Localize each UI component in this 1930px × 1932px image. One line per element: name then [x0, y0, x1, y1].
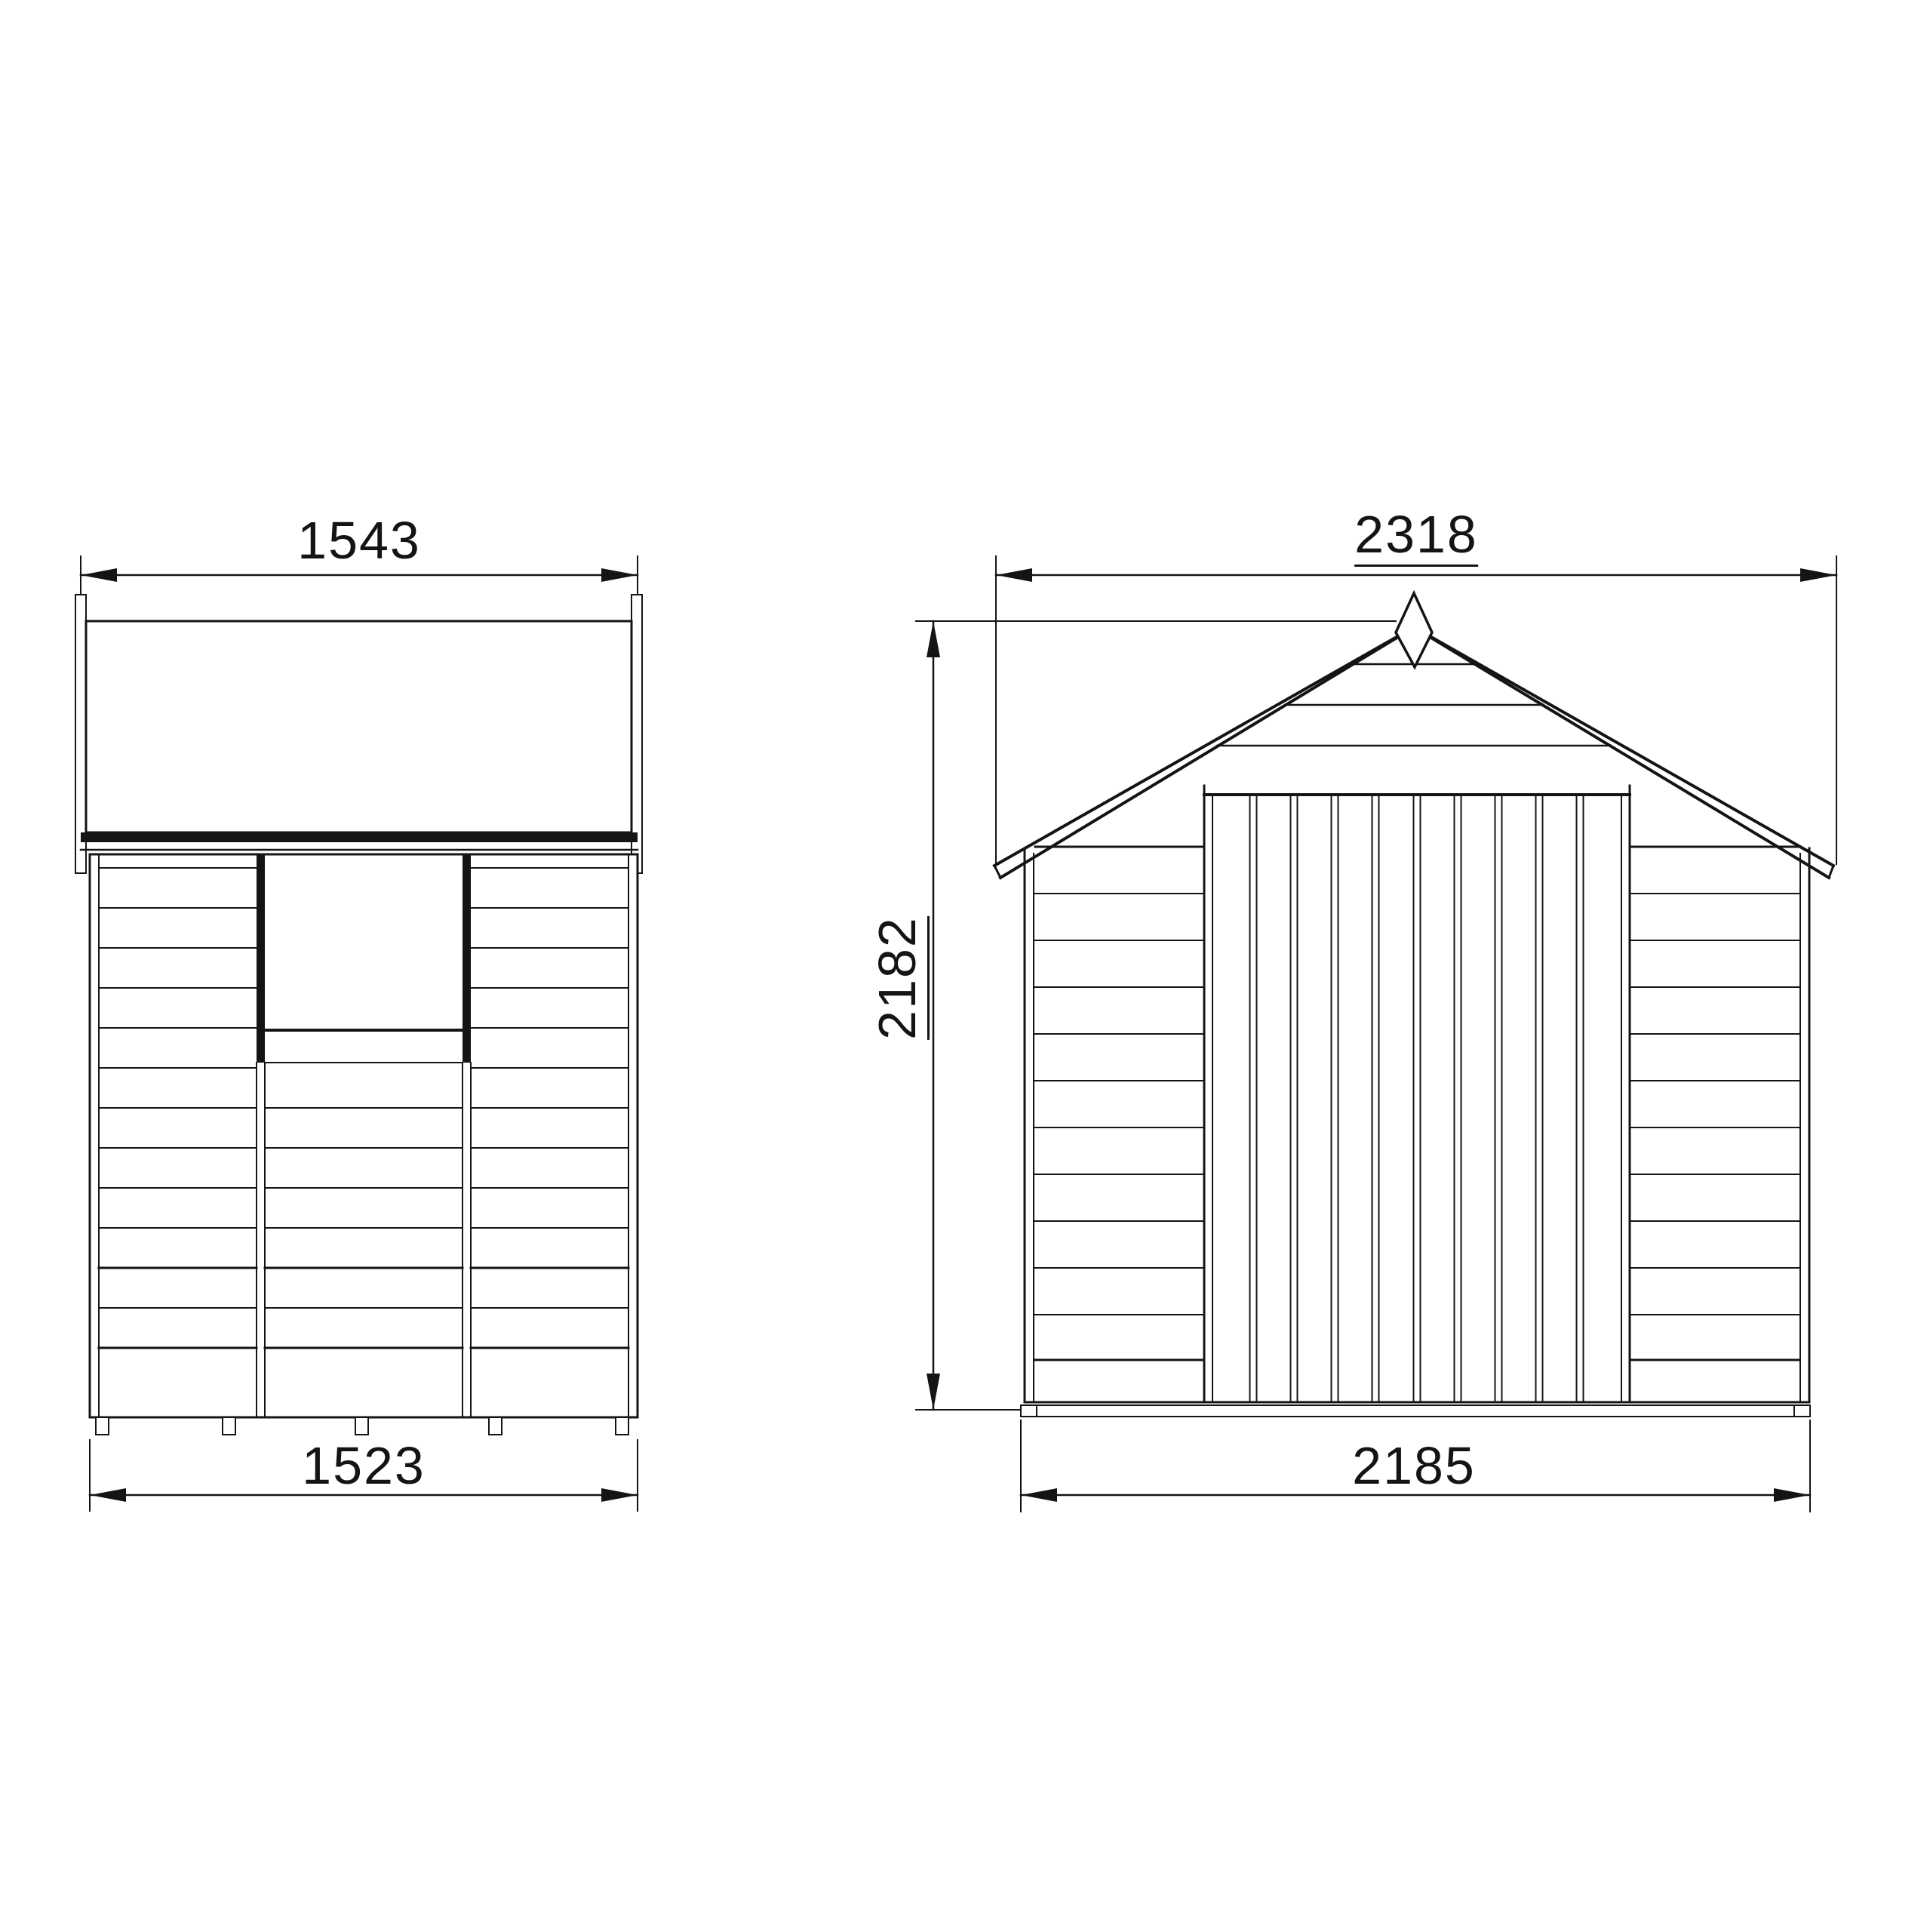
arrow-right-icon [1774, 1488, 1810, 1502]
base-bearer [1021, 1405, 1810, 1417]
bargeboard-right [632, 595, 642, 873]
front-door [1204, 786, 1630, 1402]
drawing-sheet: 1543 1523 2318 2182 2185 [0, 0, 1930, 1932]
roof-panel [86, 621, 632, 832]
side-feet [96, 1417, 628, 1435]
dim-label-side-roof-width: 1543 [297, 514, 421, 567]
wall-outline [90, 854, 638, 1417]
arrow-left-icon [1021, 1488, 1057, 1502]
foot [616, 1417, 628, 1435]
foot [96, 1417, 109, 1435]
dim-label-front-roof-width: 2318 [1354, 508, 1478, 567]
front-walls [1025, 847, 1809, 1402]
arrow-left-icon [81, 568, 117, 582]
shed-technical-drawing [0, 0, 1930, 1932]
front-base [1021, 1402, 1810, 1417]
arrow-left-icon [996, 568, 1032, 582]
side-view [75, 556, 642, 1511]
finial-icon [1396, 593, 1432, 667]
front-cladding [1035, 847, 1799, 1360]
side-roof [75, 595, 642, 873]
side-wall [90, 854, 638, 1417]
dim-label-front-base-width: 2185 [1352, 1439, 1476, 1492]
bargeboard-left [75, 595, 86, 873]
dim-label-front-height: 2182 [871, 916, 930, 1040]
front-view [916, 556, 1836, 1512]
foot [223, 1417, 235, 1435]
foot [489, 1417, 502, 1435]
arrow-right-icon [601, 568, 638, 582]
foot [355, 1417, 368, 1435]
fascia-end-cap [994, 866, 1000, 878]
fascia-end-cap [1829, 866, 1833, 878]
dim-label-side-base-width: 1523 [302, 1439, 426, 1492]
arrow-down-icon [927, 1374, 940, 1410]
arrow-up-icon [927, 621, 940, 657]
eave-band [81, 832, 638, 842]
door-boards [1250, 795, 1584, 1402]
arrow-right-icon [1800, 568, 1836, 582]
front-dim-height [916, 621, 1396, 1410]
arrow-left-icon [90, 1488, 126, 1502]
arrow-right-icon [601, 1488, 638, 1502]
